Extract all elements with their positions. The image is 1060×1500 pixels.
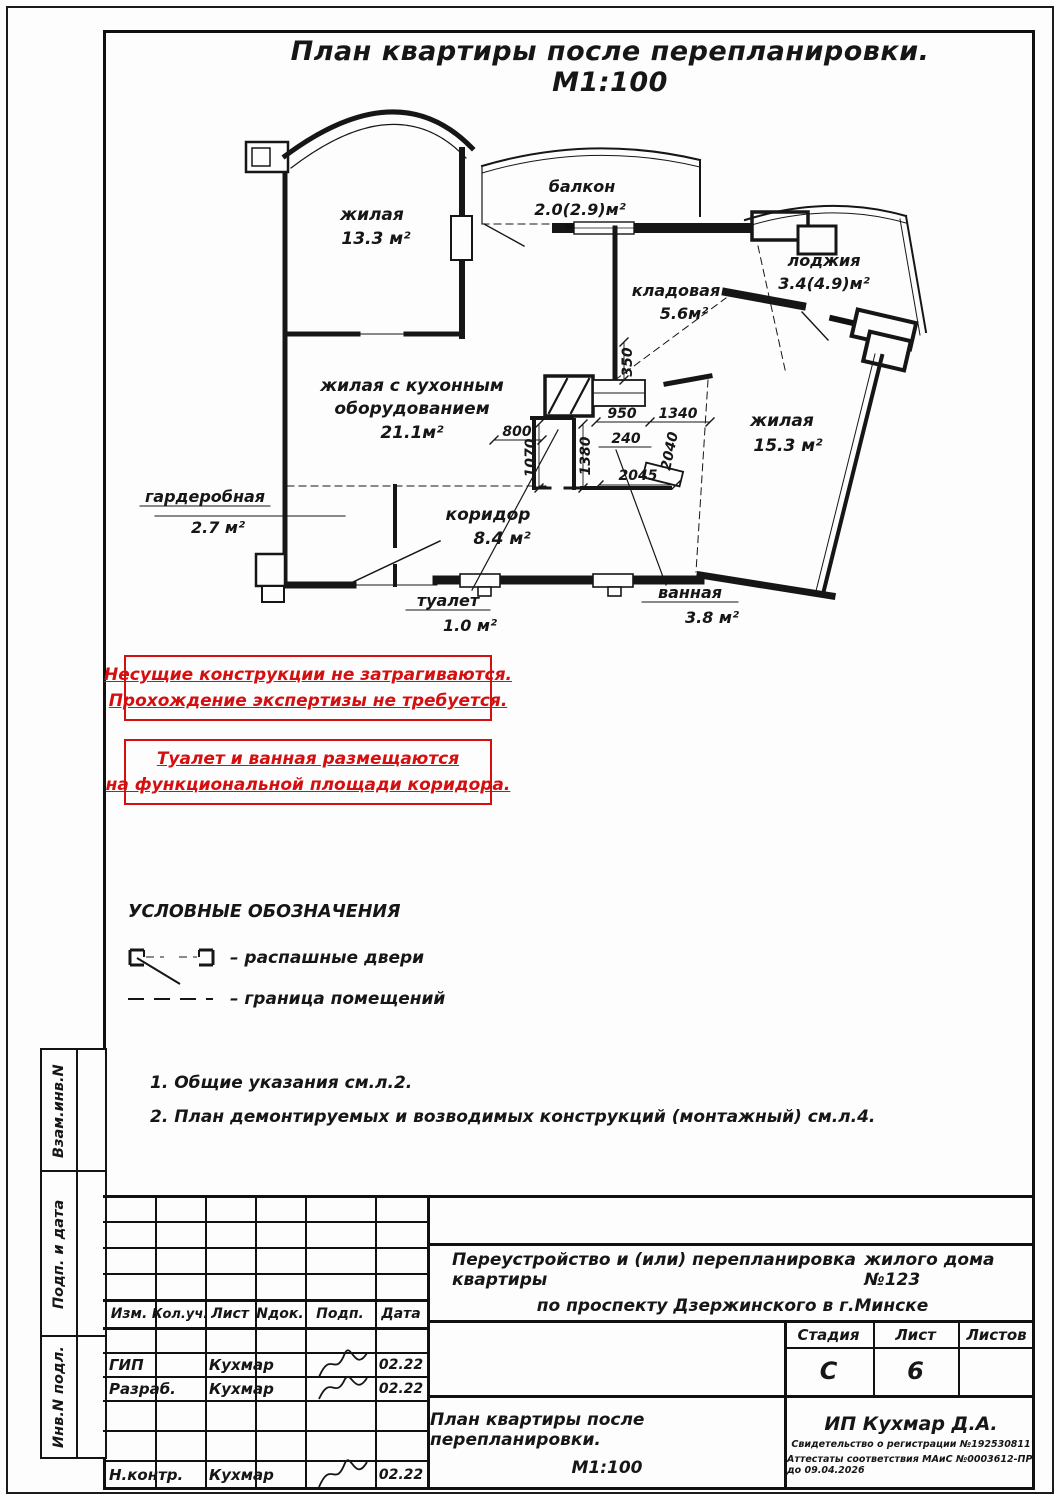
room-label-corridor: коридор: [446, 505, 531, 525]
title-block: Изм. Кол.уч. Лист Nдок. Подп. Дата ГИП К…: [103, 1195, 1035, 1490]
sidebar-cell-inv: Инв.N подл.: [40, 1335, 107, 1459]
sidebar-label-podp: Подп. и дата: [42, 1172, 76, 1337]
row-gip-name: Кухмар: [209, 1353, 303, 1376]
stage-label: Стадия: [784, 1322, 873, 1347]
col-podp: Подп.: [305, 1301, 375, 1327]
boundary-line-icon: [128, 994, 213, 1004]
dim-1070: 1070: [523, 438, 539, 477]
room-area-storage: 5.6м²: [660, 304, 708, 323]
col-list: Лист: [205, 1301, 255, 1327]
col-data: Дата: [375, 1301, 427, 1327]
swing-door-icon: [124, 938, 219, 986]
signature-nkontr: [311, 1453, 373, 1493]
room-area-loggia: 3.4(4.9)м²: [778, 274, 869, 293]
firm-cell: ИП Кухмар Д.А. Свидетельство о регистрац…: [787, 1398, 1035, 1490]
row-razrab-name: Кухмар: [209, 1377, 303, 1400]
sidebar-cell-podp: Подп. и дата: [40, 1170, 107, 1339]
room-area-balcony: 2.0(2.9)м²: [534, 200, 625, 219]
sidebar-divider: [76, 1337, 78, 1457]
dim-240: 240: [611, 431, 640, 447]
row-gip-date: 02.22: [377, 1353, 425, 1376]
drawing-name-cell: План квартиры после перепланировки. М1:1…: [430, 1398, 784, 1490]
dim-2040: 2040: [658, 430, 682, 472]
sidebar-divider: [76, 1172, 78, 1337]
row-razrab-date: 02.22: [377, 1377, 425, 1400]
room-area-wc: 1.0 м²: [443, 616, 497, 635]
sheet-no-label: Лист: [873, 1322, 958, 1347]
row-nkontr-role: Н.контр.: [109, 1461, 203, 1488]
legend-heading: УСЛОВНЫЕ ОБОЗНАЧЕНИЯ: [128, 902, 401, 922]
sidebar-label-vzam: Взам.инв.N: [42, 1050, 76, 1172]
row-razrab-role: Разраб.: [109, 1377, 203, 1400]
room-area-living2: 15.3 м²: [753, 436, 823, 456]
firm-cert2: Аттестаты соответствия МАиС №0003612-ПР …: [787, 1454, 1035, 1476]
row-gip-role: ГИП: [109, 1353, 203, 1376]
room-area-corridor: 8.4 м²: [473, 529, 531, 549]
project-line1: Переустройство и (или) перепланировка кв…: [452, 1250, 864, 1290]
dim-1340: 1340: [659, 406, 698, 422]
project-name-cell: Переустройство и (или) перепланировка кв…: [430, 1246, 1035, 1320]
room-label-kitchen-2: оборудованием: [334, 399, 489, 419]
col-ndok: Nдок.: [255, 1301, 305, 1327]
sheets-total-label: Листов: [958, 1322, 1035, 1347]
note-1: 1. Общие указания см.л.2.: [150, 1066, 875, 1100]
room-area-wardrobe: 2.7 м²: [191, 518, 245, 537]
room-label-loggia: лоджия: [787, 251, 860, 270]
row-nkontr-name: Кухмар: [209, 1461, 303, 1488]
dim-1380: 1380: [578, 436, 594, 475]
general-notes: 1. Общие указания см.л.2. 2. План демонт…: [150, 1066, 875, 1134]
col-izm: Изм.: [103, 1301, 155, 1327]
sheets-total-value: [958, 1347, 1035, 1395]
notice-structures-line2: Прохождение экспертизы не требуется.: [109, 688, 508, 714]
legend-door-label: – распашные двери: [230, 948, 424, 968]
room-area-kitchen: 21.1м²: [380, 423, 444, 443]
room-label-balcony: балкон: [549, 177, 616, 196]
col-kol: Кол.уч.: [155, 1301, 205, 1327]
drawing-sheet: План квартиры после перепланировки. М1:1…: [0, 0, 1060, 1500]
room-label-bath: ванная: [658, 583, 722, 602]
project-line1b: жилого дома №123: [864, 1250, 1021, 1290]
sidebar-cell-vzam: Взам.инв.N: [40, 1048, 107, 1174]
firm-name: ИП Кухмар Д.А.: [824, 1413, 997, 1435]
drawing-name-line1: План квартиры после перепланировки.: [430, 1410, 784, 1450]
notice-wc-bath-line2: на функциональной площади коридора.: [106, 772, 511, 798]
project-line2: по проспекту Дзержинского в г.Минске: [430, 1296, 1035, 1316]
dim-800: 800: [502, 424, 531, 440]
notice-wc-bath: Туалет и ванная размещаются на функциона…: [124, 739, 492, 805]
note-2: 2. План демонтируемых и возводимых конст…: [150, 1100, 875, 1134]
notice-wc-bath-line1: Туалет и ванная размещаются: [157, 746, 459, 772]
room-label-storage: кладовая: [632, 281, 720, 300]
drawing-name-line2: М1:100: [571, 1458, 642, 1478]
room-label-wardrobe: гардеробная: [145, 487, 265, 506]
room-label-living2: жилая: [749, 411, 814, 431]
room-label-kitchen-1: жилая с кухонным: [319, 376, 504, 396]
dim-350: 350: [620, 347, 636, 376]
legend-boundary-label: – граница помещений: [230, 989, 445, 1009]
notice-structures: Несущие конструкции не затрагиваются. Пр…: [124, 655, 492, 721]
row-nkontr-date: 02.22: [377, 1461, 425, 1488]
dim-2045: 2045: [619, 468, 658, 484]
stage-value: С: [784, 1347, 873, 1395]
room-area-living1: 13.3 м²: [341, 229, 411, 249]
sidebar-divider: [76, 1050, 78, 1172]
room-area-bath: 3.8 м²: [685, 608, 739, 627]
floor-plan: жилая 13.3 м² балкон 2.0(2.9)м² кладовая…: [110, 88, 950, 668]
room-label-wc: туалет: [417, 591, 481, 610]
notice-structures-line1: Несущие конструкции не затрагиваются.: [104, 662, 512, 688]
dim-950: 950: [607, 406, 636, 422]
sidebar-label-inv: Инв.N подл.: [42, 1337, 76, 1457]
firm-cert1: Свидетельство о регистрации №192530811: [791, 1439, 1030, 1450]
room-label-living1: жилая: [339, 205, 404, 225]
sheet-no-value: 6: [873, 1347, 958, 1395]
signature-razrab: [311, 1371, 373, 1405]
